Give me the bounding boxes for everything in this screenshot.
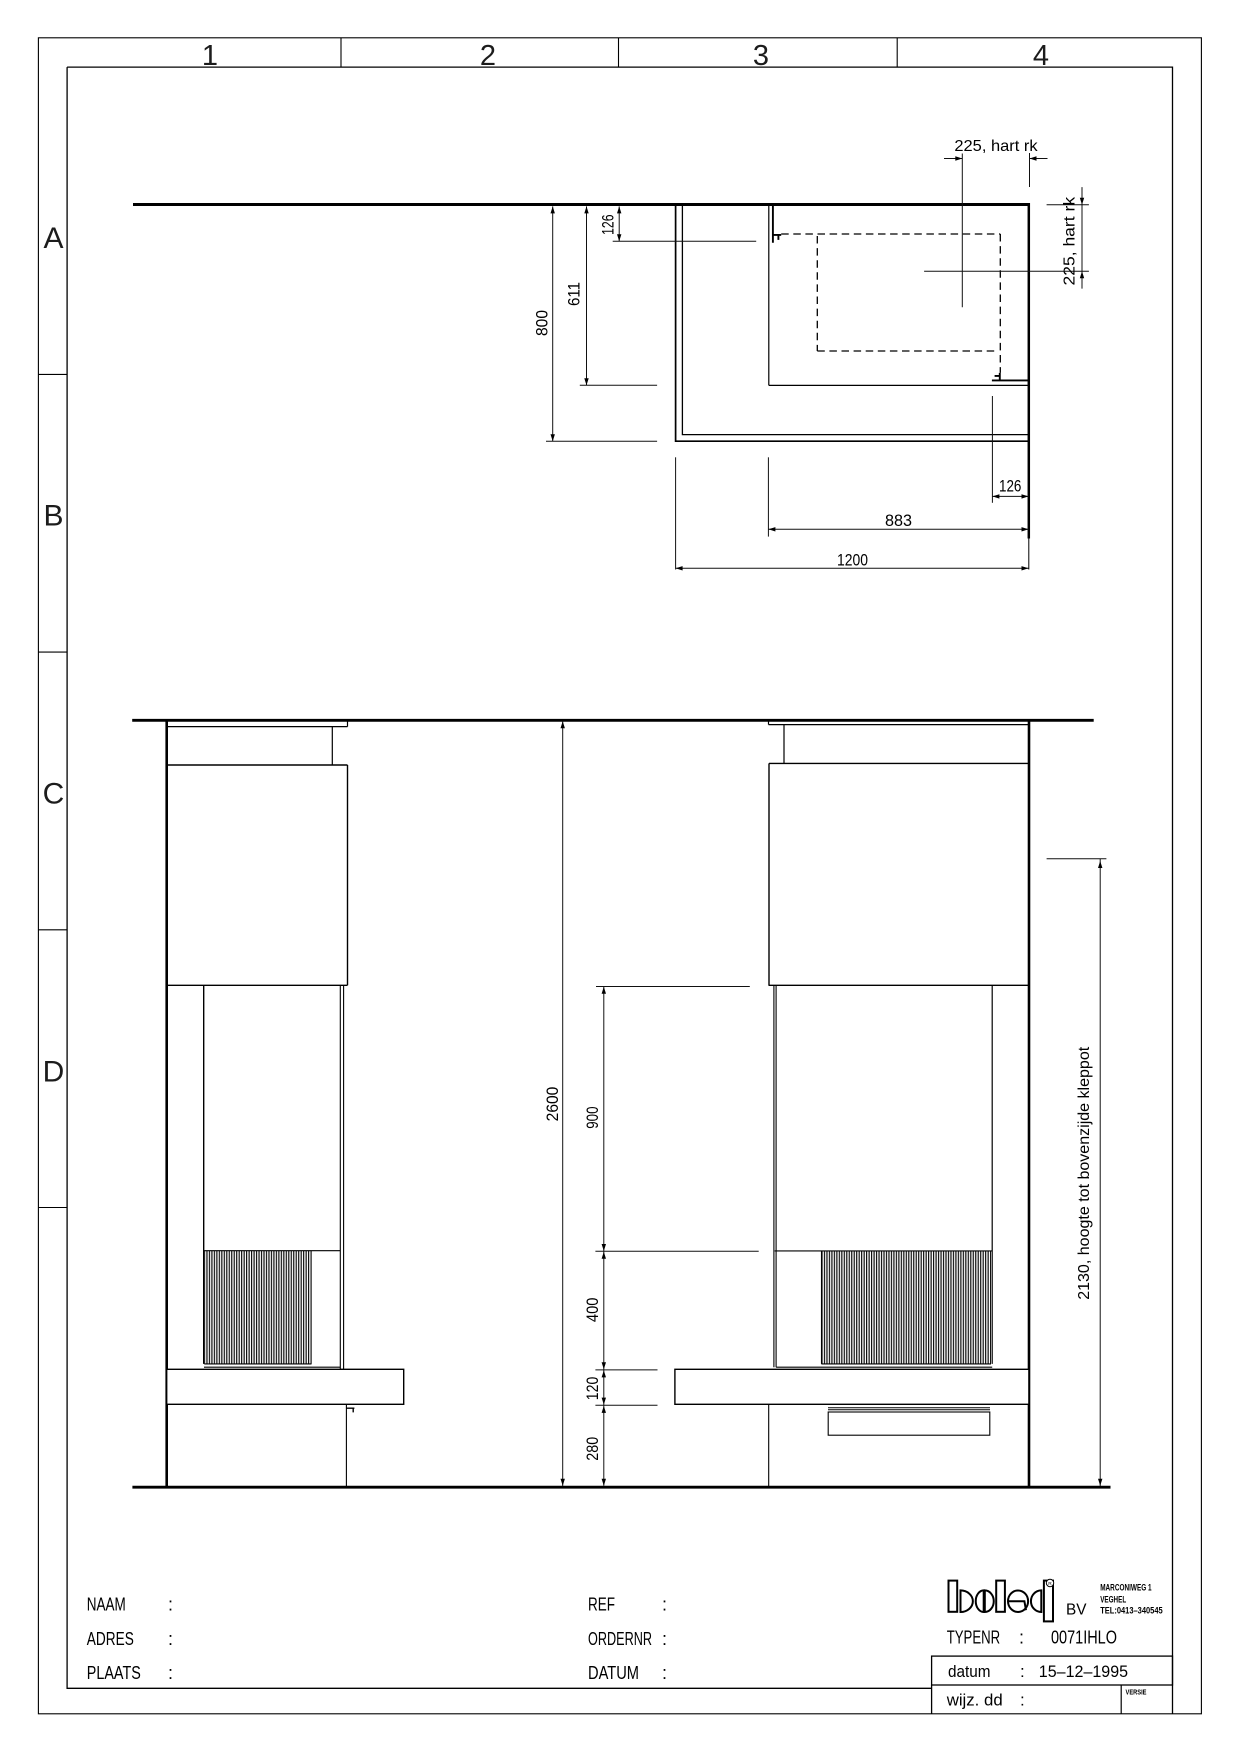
svg-text::: : xyxy=(662,1629,667,1649)
svg-text:R: R xyxy=(1048,1581,1052,1587)
svg-text:900: 900 xyxy=(583,1106,602,1128)
svg-text:ORDERNR: ORDERNR xyxy=(588,1629,652,1649)
svg-text:VEGHEL: VEGHEL xyxy=(1100,1594,1126,1604)
svg-text:2600: 2600 xyxy=(543,1087,562,1122)
svg-text:PLAATS: PLAATS xyxy=(87,1663,141,1683)
svg-text::: : xyxy=(1019,1628,1024,1648)
svg-text:1200: 1200 xyxy=(837,551,868,570)
svg-text:VERSIE: VERSIE xyxy=(1126,1688,1147,1697)
svg-text::: : xyxy=(1020,1691,1025,1710)
svg-text:225, hart rk: 225, hart rk xyxy=(1062,196,1079,286)
svg-text:B: B xyxy=(43,500,63,533)
svg-text:D: D xyxy=(43,1055,65,1088)
svg-text:C: C xyxy=(43,778,65,811)
svg-text:611: 611 xyxy=(565,282,584,306)
svg-text:wijz. dd: wijz. dd xyxy=(946,1691,1003,1710)
svg-text:280: 280 xyxy=(583,1437,602,1461)
svg-text:3: 3 xyxy=(753,40,769,72)
svg-text:4: 4 xyxy=(1033,40,1049,72)
svg-text:15–12–1995: 15–12–1995 xyxy=(1039,1662,1128,1681)
svg-text::: : xyxy=(1020,1662,1025,1681)
svg-text:2: 2 xyxy=(480,40,496,72)
svg-text:120: 120 xyxy=(583,1377,602,1401)
svg-text::: : xyxy=(662,1663,667,1683)
svg-text::: : xyxy=(168,1663,173,1683)
svg-text::: : xyxy=(662,1595,667,1615)
svg-text::: : xyxy=(168,1629,173,1649)
svg-text:400: 400 xyxy=(583,1298,602,1323)
svg-text:ADRES: ADRES xyxy=(87,1629,134,1649)
svg-text:883: 883 xyxy=(885,511,912,530)
svg-text:126: 126 xyxy=(999,477,1021,496)
svg-text:TEL:0413–340545: TEL:0413–340545 xyxy=(1100,1606,1163,1616)
svg-text:0071IHLO: 0071IHLO xyxy=(1051,1628,1117,1648)
svg-text:NAAM: NAAM xyxy=(87,1595,126,1615)
svg-text:A: A xyxy=(43,222,63,255)
svg-text:1: 1 xyxy=(202,40,218,72)
svg-text:datum: datum xyxy=(948,1662,991,1681)
svg-text:225, hart rk: 225, hart rk xyxy=(954,138,1038,155)
svg-text:2130, hoogte tot bovenzijde kl: 2130, hoogte tot bovenzijde kleppot xyxy=(1076,1046,1093,1300)
svg-text:DATUM: DATUM xyxy=(588,1663,639,1683)
svg-text:126: 126 xyxy=(599,214,618,234)
svg-text:MARCONIWEG 1: MARCONIWEG 1 xyxy=(1100,1582,1151,1592)
svg-text::: : xyxy=(168,1595,173,1615)
svg-text:BV: BV xyxy=(1066,1601,1087,1618)
svg-text:TYPENR: TYPENR xyxy=(947,1628,1001,1648)
svg-text:REF: REF xyxy=(588,1595,615,1615)
svg-text:800: 800 xyxy=(533,310,552,336)
